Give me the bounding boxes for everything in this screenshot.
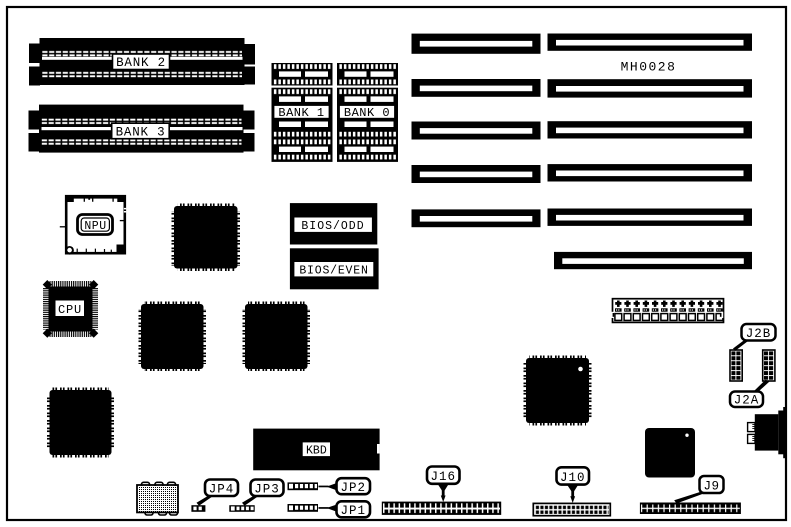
svg-text:KBD: KBD — [306, 444, 327, 457]
svg-text:BANK 2: BANK 2 — [116, 56, 166, 70]
svg-text:JP2: JP2 — [341, 481, 367, 495]
svg-text:BIOS/EVEN: BIOS/EVEN — [299, 265, 368, 278]
svg-text:BANK 3: BANK 3 — [116, 126, 166, 140]
svg-text:J2B: J2B — [746, 327, 772, 341]
svg-text:J16: J16 — [430, 470, 456, 484]
svg-text:NPU: NPU — [84, 220, 106, 233]
svg-text:MH0028: MH0028 — [621, 60, 677, 75]
svg-text:BANK 0: BANK 0 — [344, 106, 390, 120]
svg-text:J2A: J2A — [734, 394, 760, 408]
svg-text:CPU: CPU — [58, 303, 82, 317]
svg-text:J10: J10 — [560, 471, 586, 485]
svg-text:BIOS/ODD: BIOS/ODD — [301, 220, 364, 233]
svg-text:JP4: JP4 — [209, 483, 235, 497]
svg-text:JP1: JP1 — [341, 504, 367, 518]
svg-text:J9: J9 — [703, 479, 719, 493]
svg-text:JP3: JP3 — [254, 483, 280, 497]
svg-text:BANK 1: BANK 1 — [278, 106, 324, 120]
